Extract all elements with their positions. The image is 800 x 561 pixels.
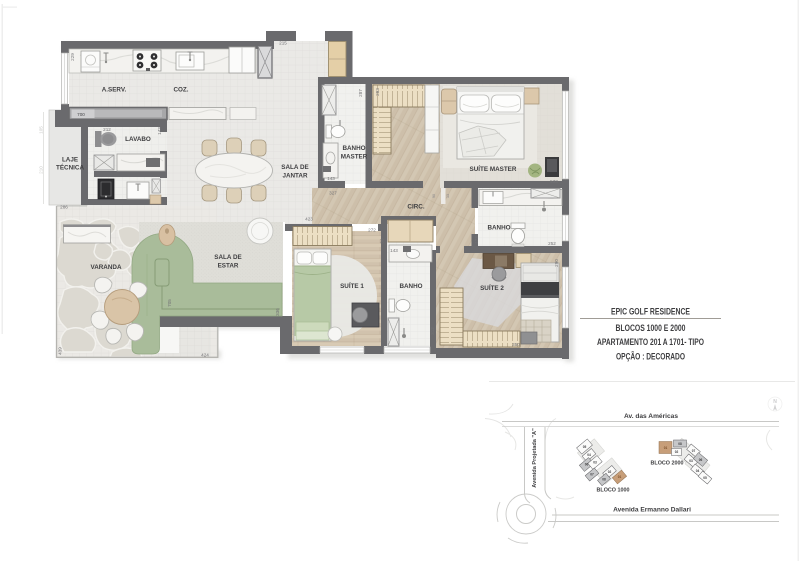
svg-text:BLOCO 2000: BLOCO 2000: [651, 461, 684, 467]
svg-text:LAJE: LAJE: [62, 157, 78, 164]
svg-text:439: 439: [58, 347, 63, 355]
svg-text:Avenida Projetada "A": Avenida Projetada "A": [532, 428, 538, 488]
svg-text:08: 08: [678, 442, 682, 446]
svg-text:TÉCNICA: TÉCNICA: [56, 163, 84, 172]
svg-text:423: 423: [305, 217, 313, 222]
svg-text:424: 424: [201, 353, 209, 358]
svg-text:06: 06: [699, 458, 703, 462]
svg-text:Av. das Américas: Av. das Américas: [624, 413, 678, 420]
svg-text:SUÍTE MASTER: SUÍTE MASTER: [470, 164, 517, 173]
svg-text:283: 283: [375, 88, 380, 96]
svg-text:LAVABO: LAVABO: [125, 136, 151, 143]
svg-text:BLOCO 1000: BLOCO 1000: [597, 488, 630, 494]
svg-text:173: 173: [474, 236, 479, 244]
svg-text:290: 290: [554, 259, 559, 267]
svg-text:COZ.: COZ.: [173, 87, 188, 94]
svg-text:OPÇÃO : DECORADO: OPÇÃO : DECORADO: [616, 352, 685, 362]
svg-text:MASTER: MASTER: [341, 154, 368, 161]
svg-text:SALA DE: SALA DE: [281, 164, 308, 171]
svg-text:05: 05: [583, 445, 587, 449]
svg-text:700: 700: [77, 112, 85, 117]
svg-text:229: 229: [70, 53, 75, 61]
svg-text:143: 143: [327, 176, 335, 181]
svg-text:105: 105: [39, 126, 44, 134]
svg-text:SUÍTE 1: SUÍTE 1: [340, 281, 364, 290]
svg-text:705: 705: [167, 299, 172, 307]
svg-text:04: 04: [587, 453, 591, 457]
svg-text:272: 272: [368, 228, 376, 233]
svg-text:13: 13: [446, 194, 450, 198]
svg-text:BLOCOS 1000 E 2000: BLOCOS 1000 E 2000: [616, 323, 686, 333]
svg-text:SALA DE: SALA DE: [214, 254, 241, 261]
svg-text:533: 533: [550, 179, 558, 184]
svg-text:143: 143: [390, 248, 398, 253]
svg-text:212: 212: [103, 127, 111, 132]
svg-text:90: 90: [432, 194, 436, 198]
svg-text:VARANDA: VARANDA: [90, 264, 121, 271]
svg-text:A.SERV.: A.SERV.: [102, 87, 127, 94]
svg-text:03: 03: [593, 461, 597, 465]
svg-text:350: 350: [512, 342, 520, 347]
svg-text:01: 01: [664, 446, 668, 450]
svg-text:ESTAR: ESTAR: [218, 263, 239, 270]
svg-text:336: 336: [275, 308, 280, 316]
svg-text:02: 02: [675, 450, 679, 454]
svg-text:143: 143: [157, 127, 162, 135]
svg-text:BANHO: BANHO: [487, 225, 510, 232]
svg-text:210: 210: [39, 166, 44, 174]
svg-text:04: 04: [696, 469, 700, 473]
svg-text:07: 07: [590, 473, 594, 477]
svg-text:08: 08: [602, 478, 606, 482]
svg-text:215: 215: [279, 41, 287, 46]
svg-text:APARTAMENTO 201 A 1701- TIPO: APARTAMENTO 201 A 1701- TIPO: [597, 337, 704, 347]
svg-text:BANHO: BANHO: [399, 283, 422, 290]
svg-text:JANTAR: JANTAR: [282, 173, 308, 180]
svg-text:BANHO: BANHO: [342, 145, 365, 152]
svg-text:286: 286: [60, 205, 68, 210]
svg-text:252: 252: [548, 241, 556, 246]
svg-text:N: N: [773, 399, 777, 405]
svg-text:02: 02: [608, 470, 612, 474]
svg-text:287: 287: [358, 89, 363, 97]
svg-text:05: 05: [703, 476, 707, 480]
svg-text:06: 06: [585, 463, 589, 467]
svg-text:CIRC.: CIRC.: [407, 204, 424, 211]
svg-text:Avenida Ermanno Dallari: Avenida Ermanno Dallari: [613, 507, 691, 514]
svg-text:01: 01: [618, 475, 622, 479]
svg-text:36: 36: [380, 238, 385, 244]
svg-text:07: 07: [692, 449, 696, 453]
svg-text:327: 327: [329, 191, 337, 196]
svg-text:312: 312: [430, 327, 435, 335]
svg-text:SUÍTE 2: SUÍTE 2: [480, 283, 504, 292]
svg-text:03: 03: [689, 459, 693, 463]
svg-text:EPIC GOLF RESIDENCE: EPIC GOLF RESIDENCE: [611, 307, 690, 317]
